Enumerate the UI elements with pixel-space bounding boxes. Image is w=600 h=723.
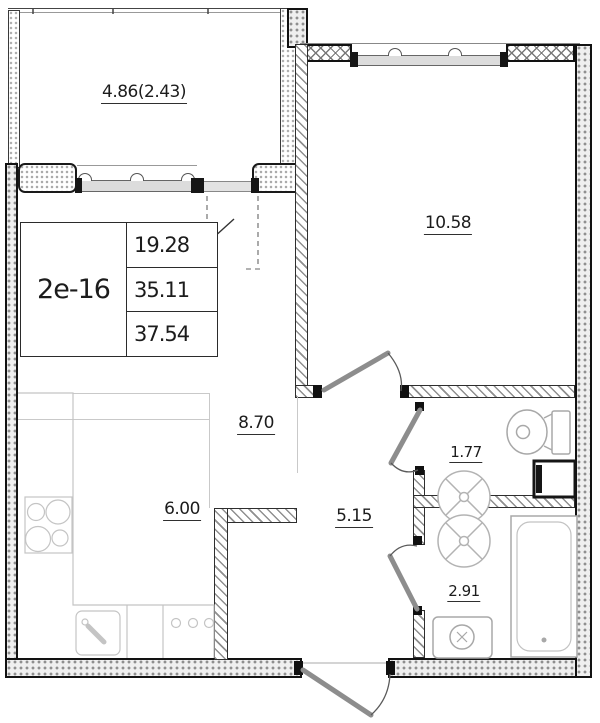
kitchen-sink <box>76 611 120 655</box>
room-label-living-room: 8.70 <box>237 413 275 435</box>
unit-id: 2е-16 <box>21 223 127 356</box>
bathroom-door <box>391 402 424 475</box>
unit-areas: 19.28 35.11 37.54 <box>127 223 217 356</box>
unit-area-living: 19.28 <box>127 223 217 268</box>
fixtures-layer <box>0 0 600 723</box>
room-label-kitchen: 6.00 <box>163 499 201 521</box>
shower-room-door <box>390 536 422 615</box>
vent-fan-icon <box>438 515 490 567</box>
entrance-door <box>294 661 395 715</box>
unit-area-total-with-balcony: 37.54 <box>127 312 217 356</box>
room-label-balcony: 4.86(2.43) <box>101 82 187 104</box>
bathtub <box>511 516 577 657</box>
floor-plan: 2е-16 19.28 35.11 37.54 4.86(2.43) 10.58… <box>0 0 600 723</box>
balcony-rail-ticks <box>33 8 208 14</box>
room-label-bedroom: 10.58 <box>424 213 472 235</box>
room-label-hallway: 5.15 <box>335 506 373 528</box>
bedroom-door <box>313 353 409 398</box>
stove <box>25 497 72 553</box>
shower-tray <box>433 617 492 658</box>
unit-spec-table: 2е-16 19.28 35.11 37.54 <box>20 222 218 357</box>
kitchen-counter <box>18 393 214 658</box>
toilet <box>507 410 570 454</box>
room-label-bathroom: 1.77 <box>449 443 482 463</box>
washing-machine <box>534 461 575 497</box>
unit-area-total: 35.11 <box>127 268 217 313</box>
kitchen-appliance-knobs <box>172 619 214 628</box>
room-label-shower-room: 2.91 <box>447 582 480 602</box>
